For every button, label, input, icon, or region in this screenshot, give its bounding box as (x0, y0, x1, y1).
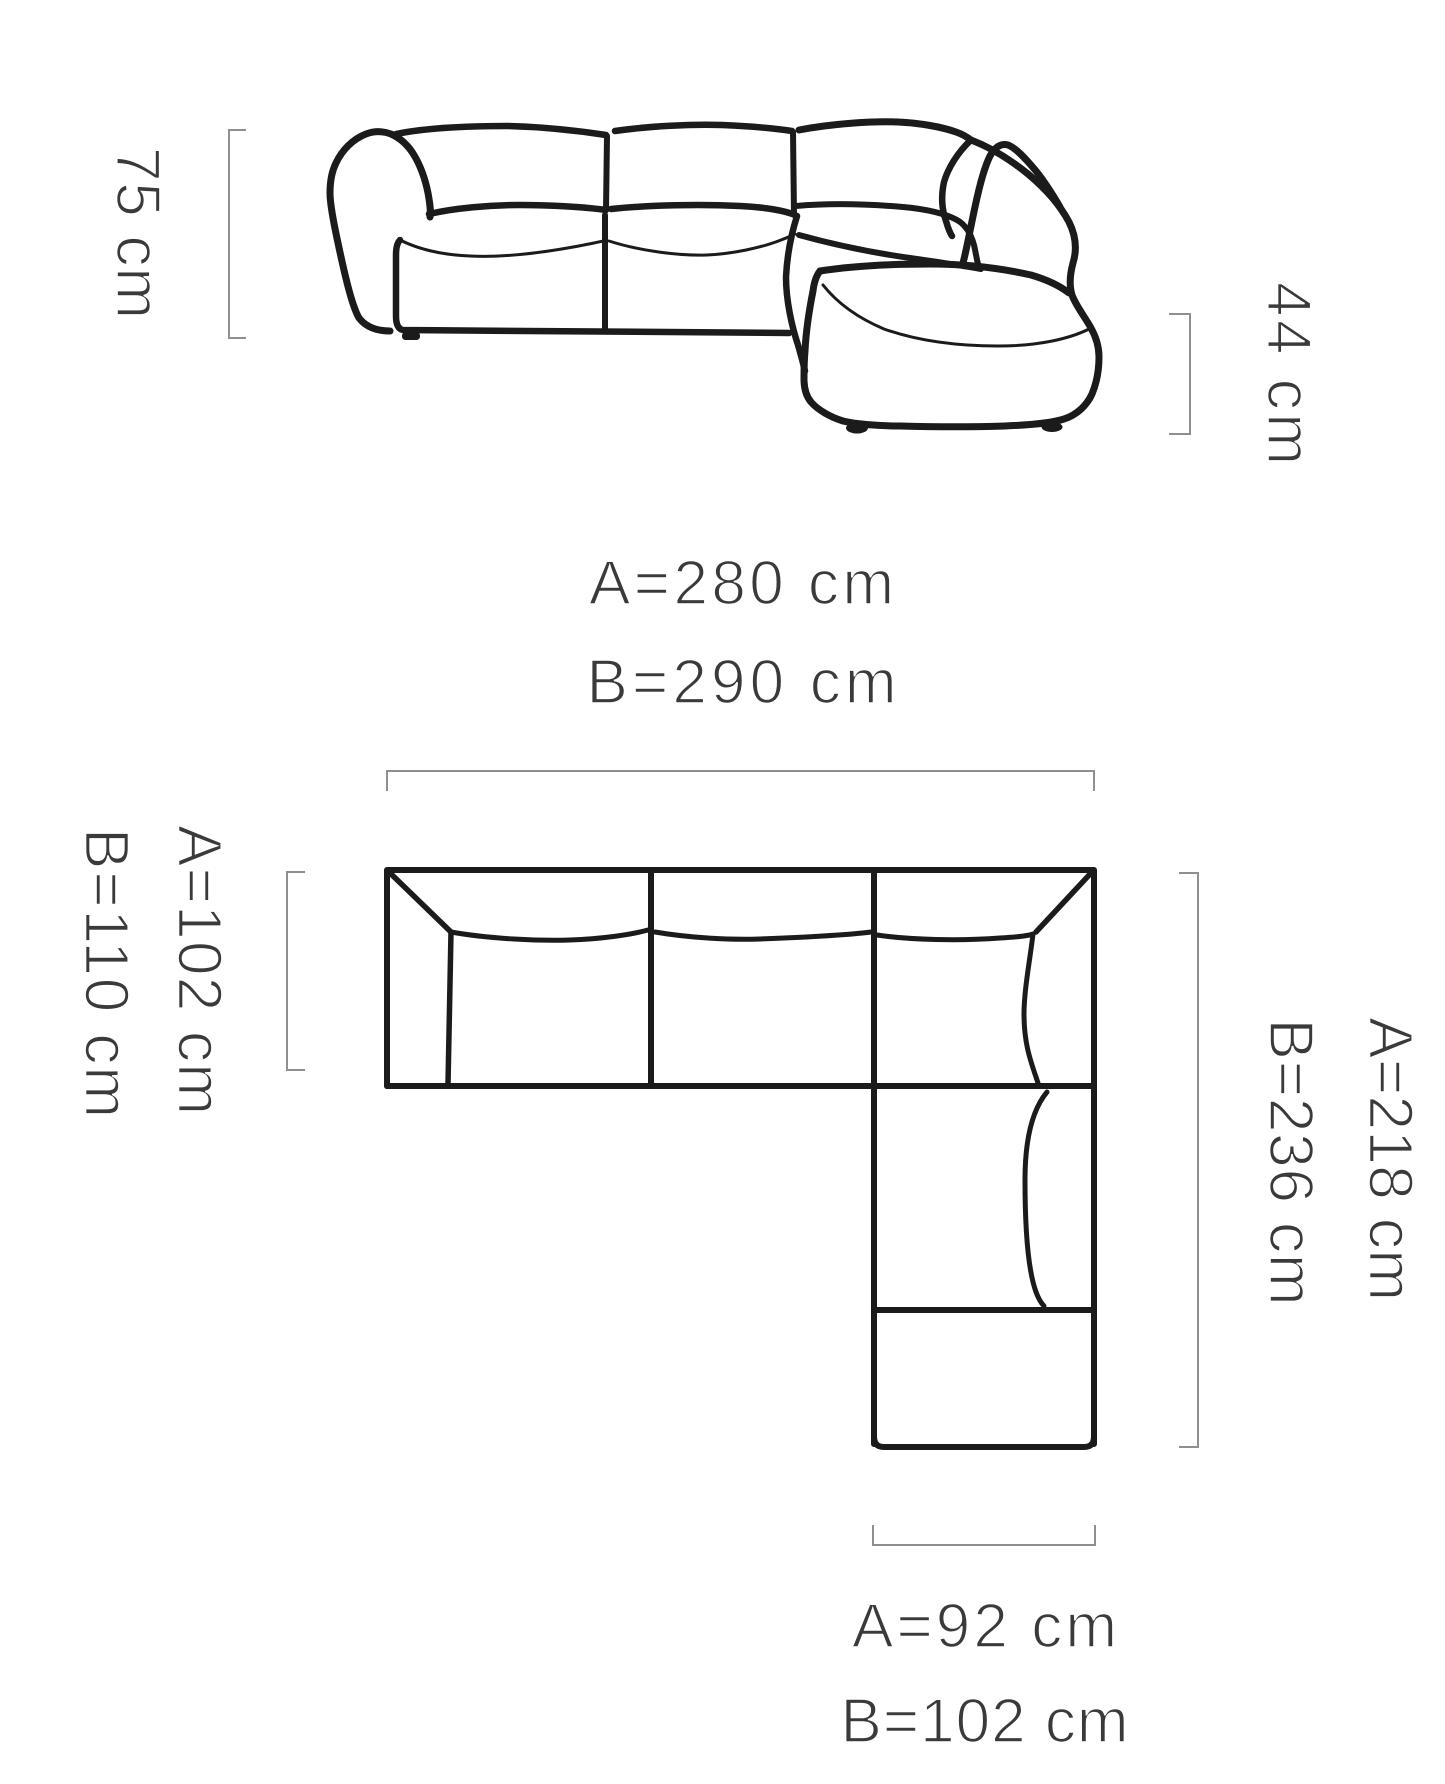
svg-text:A=280 cm: A=280 cm (589, 549, 894, 618)
svg-text:B=290 cm: B=290 cm (587, 648, 897, 717)
svg-text:75 cm: 75 cm (103, 147, 172, 319)
svg-text:A=102 cm: A=102 cm (165, 825, 234, 1115)
svg-text:44 cm: 44 cm (1254, 282, 1323, 465)
svg-text:B=102 cm: B=102 cm (841, 1687, 1129, 1756)
svg-text:A=92 cm: A=92 cm (852, 1592, 1117, 1661)
svg-text:B=236 cm: B=236 cm (1256, 1019, 1325, 1306)
svg-text:A=218 cm: A=218 cm (1356, 1017, 1425, 1301)
svg-text:B=110 cm: B=110 cm (72, 828, 141, 1118)
